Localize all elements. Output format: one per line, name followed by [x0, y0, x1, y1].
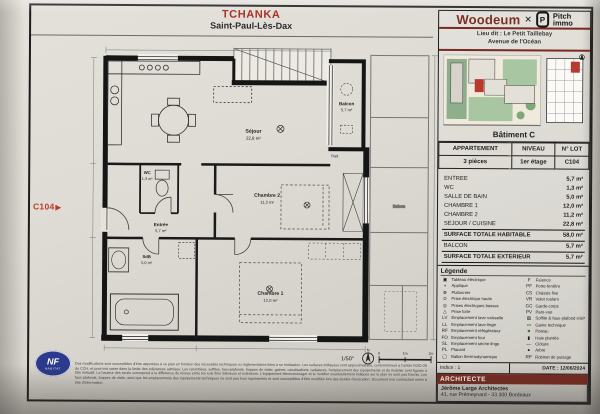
legend-right-column: F Faïence PF Porte-fenêtre CS Châs	[524, 277, 585, 361]
north-compass-icon: N	[363, 348, 374, 364]
balcon-name: Balcon	[339, 101, 355, 106]
unit-tag-arrow-icon: ▶	[55, 205, 61, 212]
cell-lot: C104	[555, 156, 589, 169]
building-caption: Bâtiment C	[440, 129, 587, 142]
col-lot: N° LOT	[555, 143, 589, 156]
chambre2-area: 11,2 m²	[260, 200, 275, 205]
surface-label: CHAMBRE 2	[444, 211, 478, 220]
nf-logo-text: NF	[47, 357, 59, 366]
surface-row: ENTREE 5,7 m²	[442, 175, 585, 185]
col-appartement: APPARTEMENT	[439, 142, 512, 155]
branding-row: Woodeum ✕ P Pitch immo	[439, 11, 590, 28]
sdb-area: 5,0 m²	[141, 261, 153, 265]
scale-bar-row: 1/50° N 0 1m 2m	[341, 348, 433, 367]
project-city: Saint-Paul-Lès-Dax	[141, 20, 361, 31]
north-letter: N	[367, 348, 370, 352]
balcon-value: 5,7 m²	[566, 242, 583, 252]
surface-label: CHAMBRE 1	[444, 202, 478, 211]
woodeum-logo: Woodeum	[456, 11, 520, 26]
bathroom-fixtures	[108, 242, 195, 331]
surface-value: 1,3 m²	[566, 185, 583, 194]
stairwell-block	[234, 49, 331, 84]
surface-value: 5,0 m²	[566, 194, 583, 203]
wc-name: WC	[144, 170, 151, 175]
entry-door-gap	[101, 208, 109, 232]
unit-tag-c104: C104▶	[33, 201, 61, 211]
wc-area: 1,3 m²	[142, 177, 154, 181]
legend: Légende ▣ Tableau électrique ◖ App	[437, 265, 589, 363]
site-plan-map	[440, 53, 587, 130]
plan-sheet: TCHANKA Saint-Paul-Lès-Dax Balcon	[0, 0, 600, 414]
bed-chambre1	[239, 243, 360, 324]
legend-item-label: Robinet de puisage	[535, 354, 571, 361]
legend-item: RP Robinet de puisage	[524, 354, 585, 361]
entree-area: 5,7 m²	[155, 228, 167, 233]
title-block: TCHANKA Saint-Paul-Lès-Dax	[141, 8, 361, 31]
ceiling-lights	[266, 125, 310, 292]
chambre2-name: Chambre 2	[254, 193, 280, 199]
architect-block: ARCHITECTE Jérôme Large Architectes 41, …	[437, 373, 588, 403]
unit-tag-text: C104	[33, 201, 55, 211]
nf-habitat-logo: NF HABITAT	[35, 350, 71, 376]
entree-name: Entrée	[154, 222, 169, 227]
site-plan-section: Bâtiment C	[438, 51, 590, 143]
total-exterieur-label: SURFACE TOTALE EXTERIEUR	[444, 252, 531, 263]
total-habitable-row: SURFACE TOTALE HABITABLE 58,0 m²	[442, 229, 585, 242]
location-block: Lieu dit : Le Petit Taillebay Avenue de …	[439, 27, 590, 52]
surface-value: 22,8 m²	[563, 221, 583, 230]
legend-item-label: Ballon thermodynamique	[451, 354, 497, 361]
sejour-area: 22,8 m²	[246, 136, 261, 141]
radiator-label: Rad.	[331, 154, 339, 158]
chambre1-area: 12,0 m²	[263, 298, 278, 303]
floor-plan: Balcon	[84, 46, 438, 356]
room-labels: Séjour 22,8 m² Balcon 5,7 m² Chambre 2 1…	[141, 100, 354, 303]
surface-row: SEJOUR / CUISINE 22,8 m²	[442, 220, 585, 230]
interior-walls	[104, 164, 366, 340]
surface-value: 5,7 m²	[566, 176, 583, 185]
surface-label: SEJOUR / CUISINE	[444, 220, 496, 229]
surface-value: 12,0 m²	[563, 203, 583, 212]
legend-columns: ▣ Tableau électrique ◖ Applique ⊕	[440, 277, 586, 361]
sejour-name: Séjour	[245, 129, 261, 135]
legend-item: ◯ Ballon thermodynamique	[440, 354, 524, 361]
surface-label: SALLE DE BAIN	[444, 193, 487, 202]
surface-value: 11,2 m²	[563, 212, 583, 221]
surface-label: ENTREE	[444, 175, 468, 184]
legend-left-column: ▣ Tableau électrique ◖ Applique ⊕	[440, 277, 525, 361]
location-line2: Avenue de l'Océan	[439, 38, 590, 46]
apartment-table: APPARTEMENT NIVEAU N° LOT 3 pièces 1er é…	[438, 142, 589, 170]
bed-chambre2	[281, 173, 363, 231]
pitch-immo-wordmark: Pitch immo	[553, 13, 573, 27]
dining-table	[151, 98, 195, 142]
nf-logo-subtext: HABITAT	[45, 366, 61, 370]
photo-background: TCHANKA Saint-Paul-Lès-Dax Balcon	[0, 0, 600, 414]
balcon-label: BALCON	[444, 241, 468, 251]
total-exterieur-row: SURFACE TOTALE EXTERIEUR 5,7 m²	[442, 251, 585, 264]
col-niveau: NIVEAU	[512, 143, 555, 156]
legend-title: Légende	[441, 268, 586, 277]
architect-address: 41, rue Prémeynard - 33 300 Bordeaux	[441, 392, 584, 399]
scale-bar	[379, 356, 431, 363]
apartment-row: 3 pièces 1er étage C104	[439, 155, 589, 169]
legend-item-icon: ◯	[440, 354, 449, 360]
cell-pieces: 3 pièces	[439, 155, 512, 168]
pitch-immo-logo-icon: P	[536, 11, 549, 27]
total-habitable-value: 58,0 m²	[563, 231, 583, 241]
wc-toilet	[155, 170, 169, 196]
sdb-name: SdB	[142, 254, 150, 259]
architect-body: Jérôme Large Architectes 41, rue Prémeyn…	[437, 384, 588, 403]
neighbor-balcon-label: Balcon	[393, 204, 405, 209]
chambre1-name: Chambre 1	[258, 291, 284, 297]
building-key-plan	[547, 59, 583, 123]
balcon-row: BALCON 5,7 m²	[442, 241, 585, 252]
site-road	[444, 125, 541, 126]
site-highlight-unit	[475, 79, 484, 92]
indice-cell: Indice : 1	[437, 363, 510, 373]
legend-item-icon: RP	[524, 354, 533, 360]
title-block-panel: Woodeum ✕ P Pitch immo Lieu dit : Le Pet…	[436, 10, 591, 404]
total-exterieur-value: 5,7 m²	[566, 253, 583, 263]
scale-tick-2m: 2m	[429, 352, 434, 356]
x-separator-icon: ✕	[524, 14, 532, 25]
total-habitable-label: SURFACE TOTALE HABITABLE	[444, 230, 531, 241]
surfaces-list: ENTREE 5,7 m² WC 1,3 m² SALLE DE BAIN 5,…	[438, 169, 590, 266]
surface-rows: ENTREE 5,7 m² WC 1,3 m² SALLE DE BAIN 5,…	[442, 175, 585, 230]
scale-tick-0: 0	[378, 351, 380, 355]
cell-etage: 1er étage	[512, 156, 555, 169]
revision-row: Indice : 1 DATE : 12/06/2024	[437, 362, 588, 374]
surface-label: WC	[444, 184, 454, 193]
scale-ratio: 1/50°	[341, 356, 354, 362]
date-cell: DATE : 12/06/2024	[510, 364, 588, 374]
balcon-area: 5,7 m²	[341, 107, 353, 112]
key-plan-unit	[571, 62, 580, 73]
pitch-line2: immo	[553, 19, 573, 28]
scale-tick-1m: 1m	[403, 352, 408, 356]
adjacent-unit: Balcon	[369, 55, 429, 339]
